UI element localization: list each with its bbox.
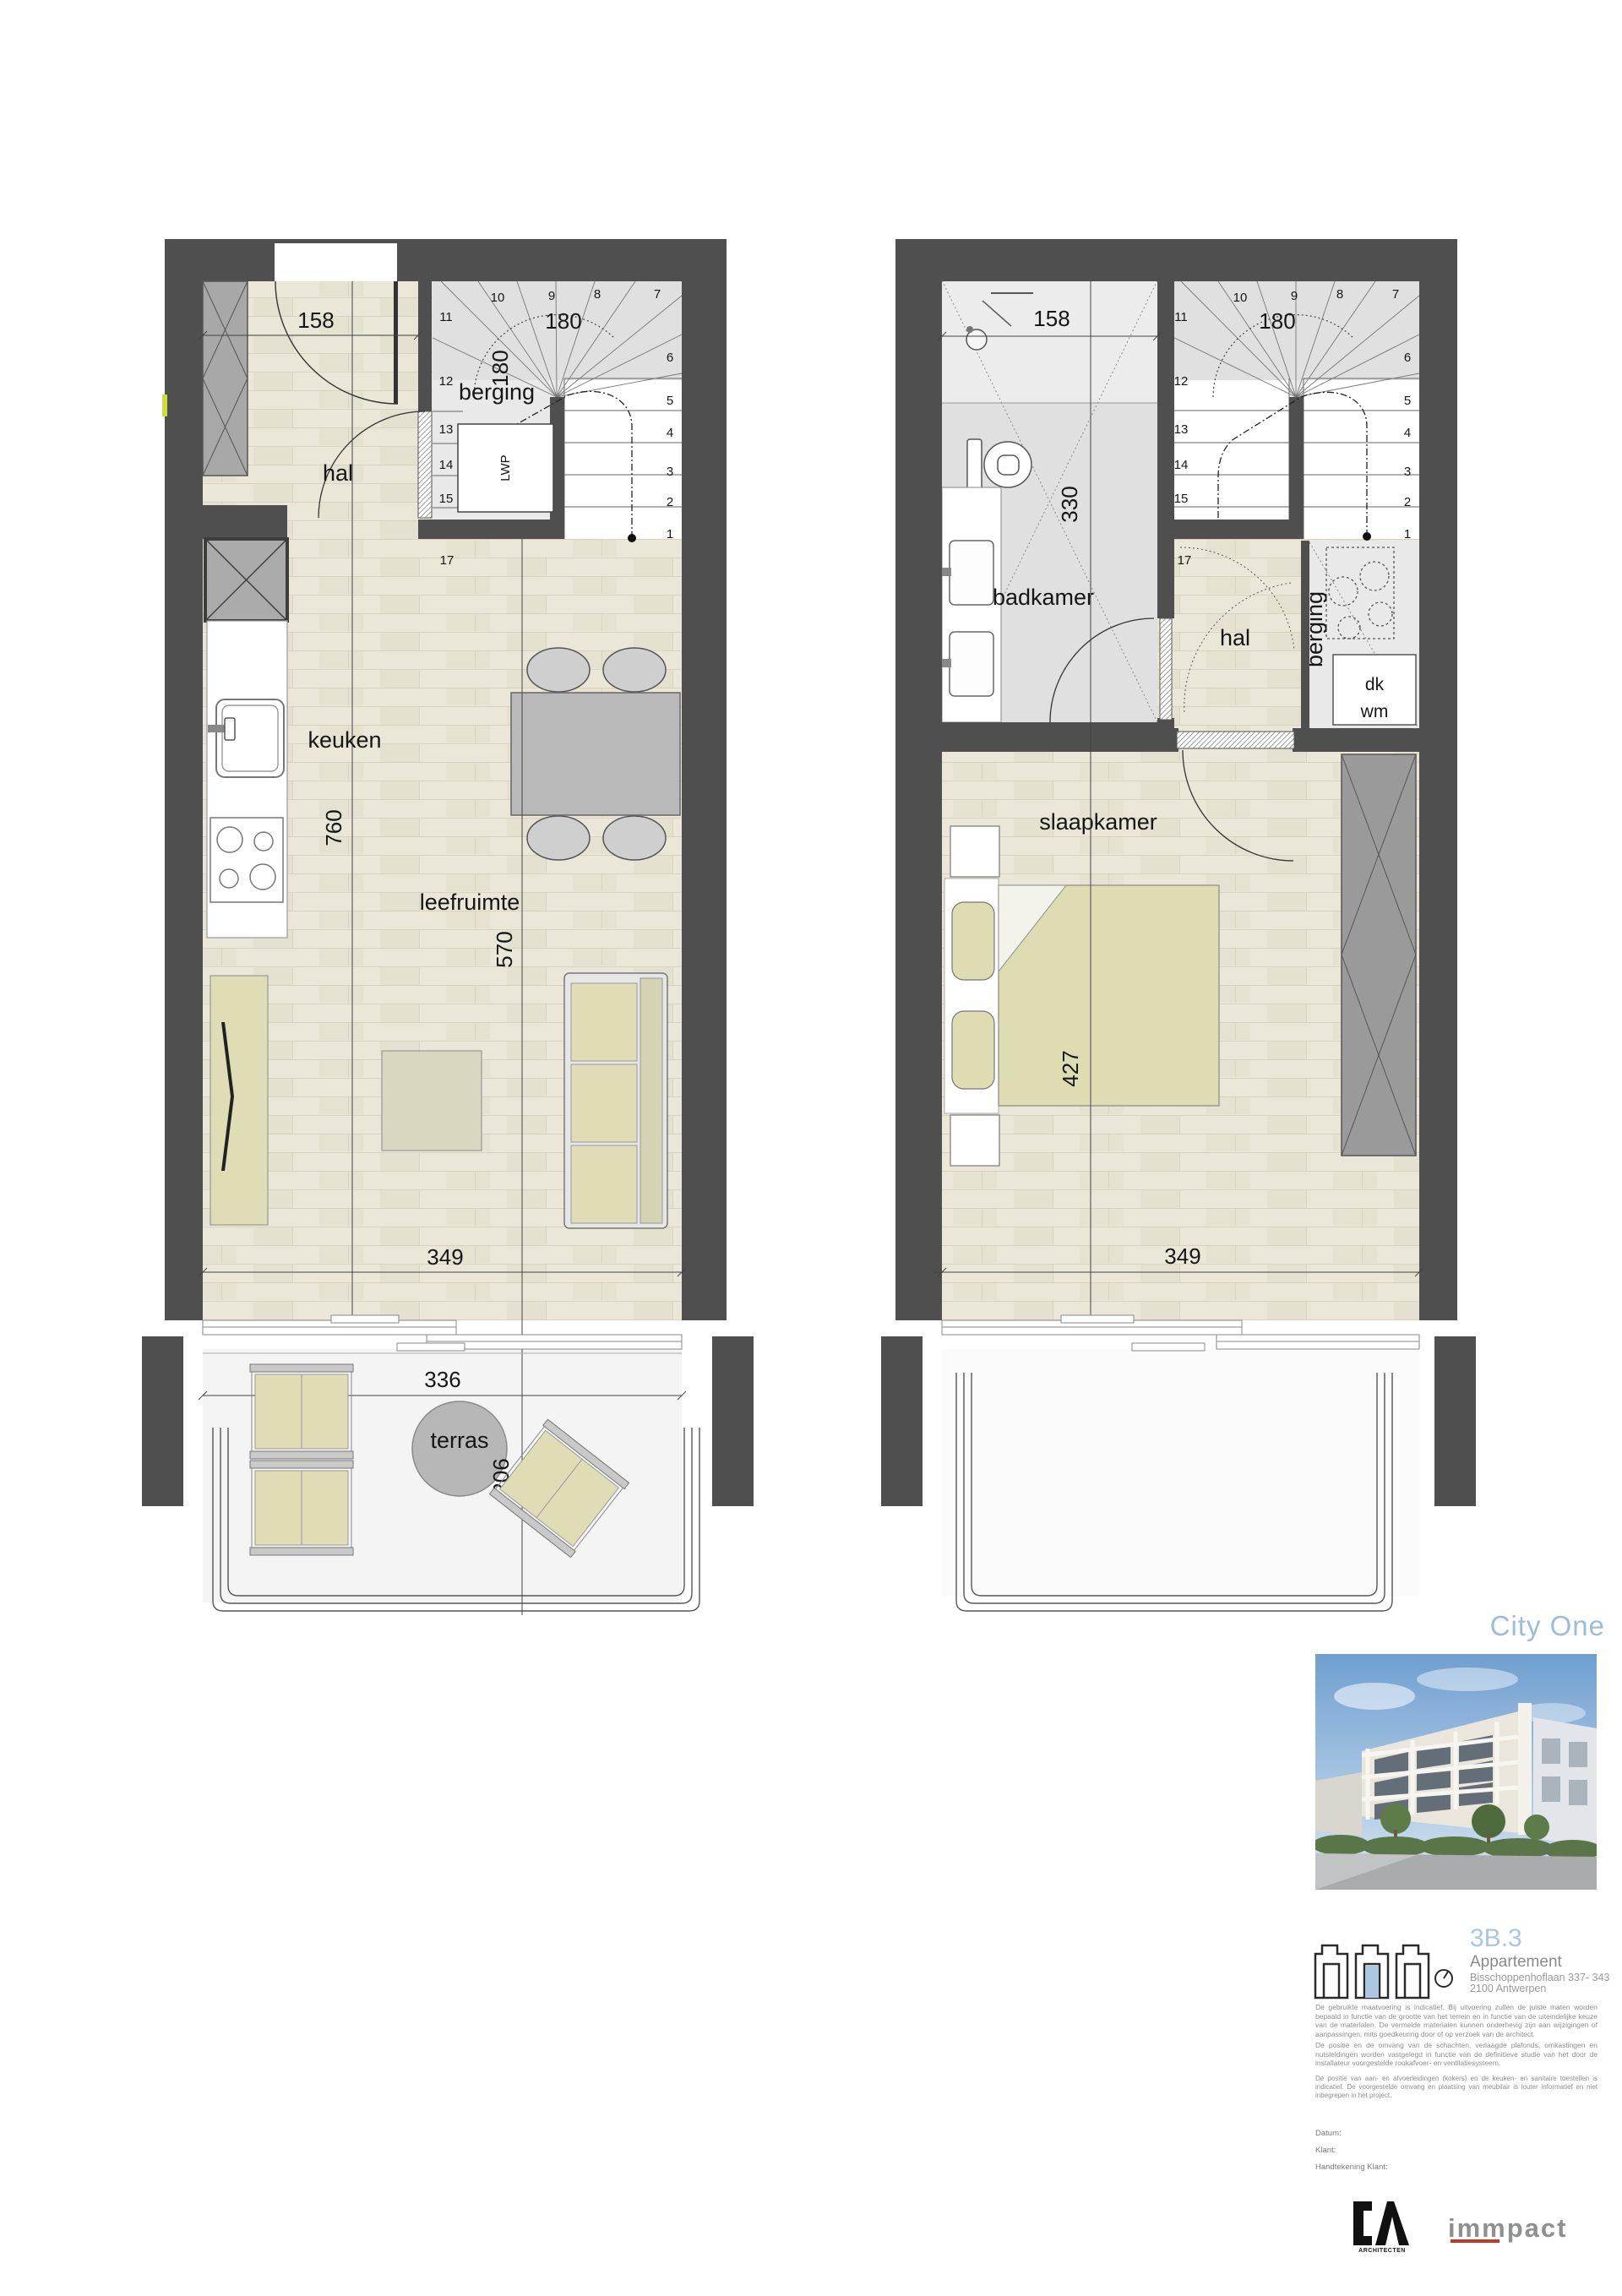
stair-spine-wall [1289, 397, 1304, 539]
room-label-hal: hal [1220, 625, 1250, 650]
svg-text:8: 8 [594, 287, 601, 302]
headboard-cushion [952, 902, 994, 980]
bed [999, 885, 1219, 1106]
svg-text:7: 7 [654, 287, 661, 302]
dim-living-length: 570 [492, 931, 517, 967]
svg-text:6: 6 [667, 351, 673, 365]
disclaimer-paragraph: De positie en de omvang van de schachten… [1315, 2041, 1598, 2068]
terrace-chair [250, 1461, 353, 1555]
svg-text:15: 15 [1174, 492, 1189, 506]
svg-text:1: 1 [667, 527, 673, 541]
svg-text:14: 14 [1174, 458, 1189, 472]
dim-entry: 158 [297, 307, 334, 333]
svg-text:5: 5 [667, 394, 673, 408]
architect-logo-text: ARCHITECTEN [1348, 2248, 1416, 2254]
building-photo [1315, 1654, 1597, 1890]
balcony-floor [942, 1349, 1419, 1597]
dim-bath-length: 330 [1057, 486, 1082, 522]
svg-text:7: 7 [1392, 287, 1399, 302]
dim-stair-width: 180 [1259, 308, 1295, 334]
unit-code: 3B.3 [1470, 1924, 1522, 1953]
wardrobe [1342, 754, 1416, 1156]
sofa [564, 973, 667, 1228]
washer-label: wm [1360, 702, 1389, 721]
dim-terrace-width: 336 [424, 1367, 460, 1392]
svg-text:6: 6 [1404, 351, 1411, 365]
svg-text:11: 11 [1174, 310, 1188, 324]
dining-table [511, 693, 680, 815]
bedroom-window [942, 1315, 1419, 1351]
terrace-chair [250, 1364, 353, 1459]
dim-bedroom-width: 349 [1164, 1243, 1200, 1269]
svg-text:12: 12 [439, 374, 454, 389]
svg-text:14: 14 [439, 458, 454, 472]
field-date: Datum: [1315, 2129, 1342, 2138]
developer-logo-underline [1451, 2239, 1500, 2243]
dim-bath-width: 158 [1033, 306, 1070, 331]
dim-stair-width: 180 [545, 308, 581, 334]
tv-unit [210, 976, 268, 1225]
svg-text:3: 3 [667, 465, 673, 479]
unit-type: Appartement [1470, 1953, 1562, 1972]
room-label-hal: hal [323, 460, 353, 486]
room-label-leefruimte: leefruimte [420, 890, 520, 915]
svg-text:5: 5 [1404, 394, 1411, 408]
svg-text:11: 11 [439, 310, 453, 324]
field-client: Klant: [1315, 2146, 1336, 2155]
svg-text:10: 10 [1233, 291, 1248, 305]
site-plan-icon [1312, 1939, 1432, 2005]
room-label-terras: terras [430, 1428, 488, 1453]
disclaimer-paragraph: De gebruikte maatvoering is indicatief. … [1315, 2003, 1598, 2039]
svg-text:2: 2 [1404, 495, 1411, 509]
svg-text:13: 13 [1174, 422, 1189, 437]
reference-marker [162, 394, 167, 416]
kitchen-sink [208, 699, 284, 777]
svg-text:17: 17 [1178, 553, 1192, 568]
svg-text:4: 4 [1404, 426, 1411, 440]
svg-text:4: 4 [667, 426, 673, 440]
plan-level-2: 158 330 badkamer [881, 239, 1476, 1611]
coffee-table [382, 1051, 482, 1151]
svg-text:2: 2 [667, 495, 673, 509]
architect-logo [1353, 2201, 1409, 2250]
svg-text:9: 9 [1291, 289, 1298, 303]
toilet [967, 439, 1031, 490]
shaft [205, 539, 287, 621]
room-label-keuken: keuken [308, 727, 381, 753]
field-signature: Handtekening Klant: [1315, 2163, 1388, 2172]
orientation-icon [1434, 1968, 1454, 1993]
room-label-slaapkamer: slaapkamer [1039, 809, 1157, 835]
svg-text:10: 10 [491, 291, 505, 305]
svg-text:12: 12 [1174, 374, 1189, 389]
dim-kitchen: 760 [321, 809, 346, 846]
room-label-berging: berging [459, 379, 535, 405]
headboard-cushion [952, 1011, 994, 1089]
svg-text:9: 9 [548, 289, 555, 303]
project-title: City One [1301, 1610, 1605, 1642]
bathroom: 158 330 badkamer [942, 280, 1157, 725]
room-label-badkamer: badkamer [993, 585, 1094, 610]
heat-pump-label: LWP [498, 454, 513, 481]
svg-text:17: 17 [440, 553, 454, 568]
nightstand [950, 826, 999, 877]
svg-text:8: 8 [1336, 287, 1343, 302]
svg-text:15: 15 [439, 492, 454, 506]
dim-bedroom-length: 427 [1058, 1050, 1083, 1086]
dryer-label: dk [1365, 675, 1385, 694]
plan-level-1: LWP 1 2 3 4 5 6 7 8 9 10 11 12 13 14 15 … [142, 239, 754, 1615]
kitchen-hob [210, 818, 283, 902]
living-window [203, 1315, 682, 1351]
address-line-2: 2100 Antwerpen [1470, 1983, 1614, 1995]
hal-wardrobe [203, 281, 248, 476]
disclaimer-paragraph: De positie van aan- en afvoerleidingen (… [1315, 2075, 1598, 2100]
nightstand [950, 1115, 999, 1166]
kitchen-fixtures [205, 539, 287, 938]
dim-living-width: 349 [427, 1244, 463, 1270]
storage-room: dk wm berging [1302, 541, 1419, 728]
svg-text:1: 1 [1404, 527, 1411, 541]
svg-text:13: 13 [439, 422, 454, 437]
svg-text:3: 3 [1404, 465, 1411, 479]
